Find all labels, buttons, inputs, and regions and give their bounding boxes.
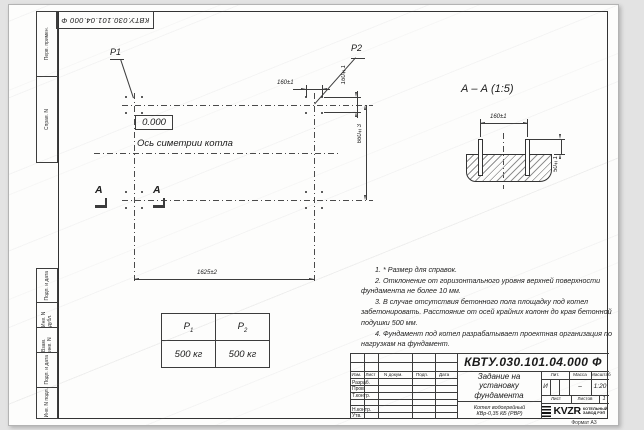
coil-logo-icon (542, 406, 551, 417)
section-cut-letter: А (95, 184, 103, 196)
dim-depth: 660±3 (357, 124, 363, 143)
margin-cell-perv-primen: Перв. примен. (36, 11, 58, 77)
dim-section-spacing: 160±1 (490, 114, 507, 120)
drawing-page: { "frame": { "stamp": "КВТУ.030.101.04.0… (0, 0, 644, 430)
load-table-header-p1: P1 (161, 313, 216, 341)
dimension-arrow (364, 105, 366, 110)
load-table-value-p1: 500 кг (161, 340, 216, 368)
dimension-arrow (364, 195, 366, 200)
organization-cell: KVZR КОТЕЛЬНЫЙ ЗАВОД РЭП (542, 404, 608, 419)
dim-width: 1625±2 (197, 270, 217, 276)
dimension-line (561, 139, 562, 154)
col-header-podp: Подп. (416, 372, 428, 377)
dimension-arrow (355, 92, 357, 97)
notes-block: 1. * Размер для справок. 2. Отклонение о… (361, 265, 613, 350)
col-header-list: Лист (366, 372, 376, 377)
row-tkontr: Т.контр. (352, 393, 370, 399)
dimension-line (366, 105, 367, 200)
dim-bolt-spacing-v: 160±1 (341, 65, 347, 84)
grid-line (559, 379, 560, 395)
row-nkontr: Н.контр. (352, 407, 371, 413)
margin-cell-podp-data-2: Подп. и дата (36, 352, 58, 388)
note-4: 4. Фундамент под котел разрабатывает про… (361, 329, 613, 350)
section-cut-mark (153, 205, 165, 208)
doc-title-text: Задание на установку фундамента (459, 372, 539, 401)
note-3: 3. В случае отсутствия бетонного пола пл… (361, 297, 613, 329)
dimension-arrow (559, 154, 561, 159)
note-2: 2. Отклонение от горизонтального уровня … (361, 276, 613, 297)
anchor-bolt (478, 139, 483, 176)
row-prov: Пров. (352, 386, 365, 392)
axis-line-bottom (122, 200, 373, 201)
sheets-value: 1 (599, 396, 609, 402)
symmetry-axis-line (94, 153, 341, 154)
margin-cell-vzam-inv: Взам. инв. N (36, 327, 58, 353)
grid-line (550, 379, 551, 395)
dimension-arrow (309, 278, 314, 280)
product-cell: Котел водогрейный КВр-0,35 КБ (РВР) (458, 403, 541, 419)
anchor-bolt (525, 139, 530, 176)
axis-line-right (314, 93, 315, 283)
logo-text: KVZR (553, 405, 580, 417)
extension-line (324, 97, 361, 98)
format-label: Формат А3 (554, 420, 614, 426)
dimension-arrow (523, 122, 528, 124)
mass-value: – (569, 383, 591, 390)
lit-value: И (541, 383, 550, 390)
top-designation-text: КВТУ.030.101.04.000 Ф (61, 16, 149, 25)
product-line-2: КВр-0,35 КБ (РВР) (476, 411, 522, 417)
dimension-arrow (559, 134, 561, 139)
col-header-ndoc: N докум. (384, 372, 403, 377)
dimension-arrow (301, 88, 306, 90)
dimension-line (480, 123, 528, 124)
load-table-value-p2: 500 кг (215, 340, 270, 368)
p1-leader-shelf (110, 59, 124, 60)
margin-cell-inv-podl: Инв. N подл. (36, 387, 58, 419)
mass-label: Масса (569, 372, 591, 377)
scale-label: Масштаб (591, 372, 609, 377)
grid-line (350, 362, 457, 363)
lit-label: Лит. (541, 372, 569, 377)
sheets-label: Листов (571, 396, 599, 401)
org-name: КОТЕЛЬНЫЙ ЗАВОД РЭП (583, 407, 608, 415)
margin-cell-sprav-n: Справ. N (36, 76, 58, 163)
extension-line (306, 85, 307, 97)
row-utv: Утв. (352, 413, 362, 419)
extension-line (530, 139, 565, 140)
load-point-p2-label: P2 (351, 43, 362, 53)
doc-title-cell: Задание на установку фундамента (459, 372, 539, 400)
load-point-p1-label: P1 (110, 47, 121, 57)
dim-bolt-height: 50±1 (553, 156, 559, 172)
load-table-header-p2: P2 (215, 313, 270, 341)
designation-text: КВТУ.030.101.04.000 Ф (464, 355, 602, 369)
level-mark-box: 0.000 (135, 115, 173, 130)
axis-line-top (122, 105, 373, 106)
dimension-arrow (480, 122, 485, 124)
level-mark-value: 0.000 (142, 117, 166, 128)
symmetry-axis-label: Ось симетрии котла (137, 138, 233, 149)
designation-cell: КВТУ.030.101.04.000 Ф (457, 354, 609, 370)
drawing-sheet: КВТУ.030.101.04.000 Ф Перв. примен. Спра… (8, 4, 619, 426)
note-1: 1. * Размер для справок. (361, 265, 613, 276)
grid-line (541, 379, 609, 380)
dimension-arrow (134, 278, 139, 280)
top-designation-stamp: КВТУ.030.101.04.000 Ф (56, 11, 154, 29)
col-header-izm: Изм. (352, 372, 362, 377)
margin-cell-podp-data-1: Подп. и дата (36, 268, 58, 303)
section-cut-letter: А (153, 184, 161, 196)
section-view-title: А – А (1:5) (461, 83, 514, 95)
dimension-line (134, 279, 315, 280)
row-razrab: Разраб. (352, 380, 370, 386)
margin-cell-inv-dubl: Инв. N дубл. (36, 302, 58, 328)
col-header-data: Дата (439, 372, 449, 377)
dim-bolt-spacing-h: 160±1 (277, 80, 294, 86)
scale-value: 1:20 (591, 383, 609, 390)
dimension-arrow (322, 88, 327, 90)
sheet-label: Лист (541, 396, 571, 401)
dimension-arrow (355, 112, 357, 117)
section-cut-mark (95, 205, 107, 208)
